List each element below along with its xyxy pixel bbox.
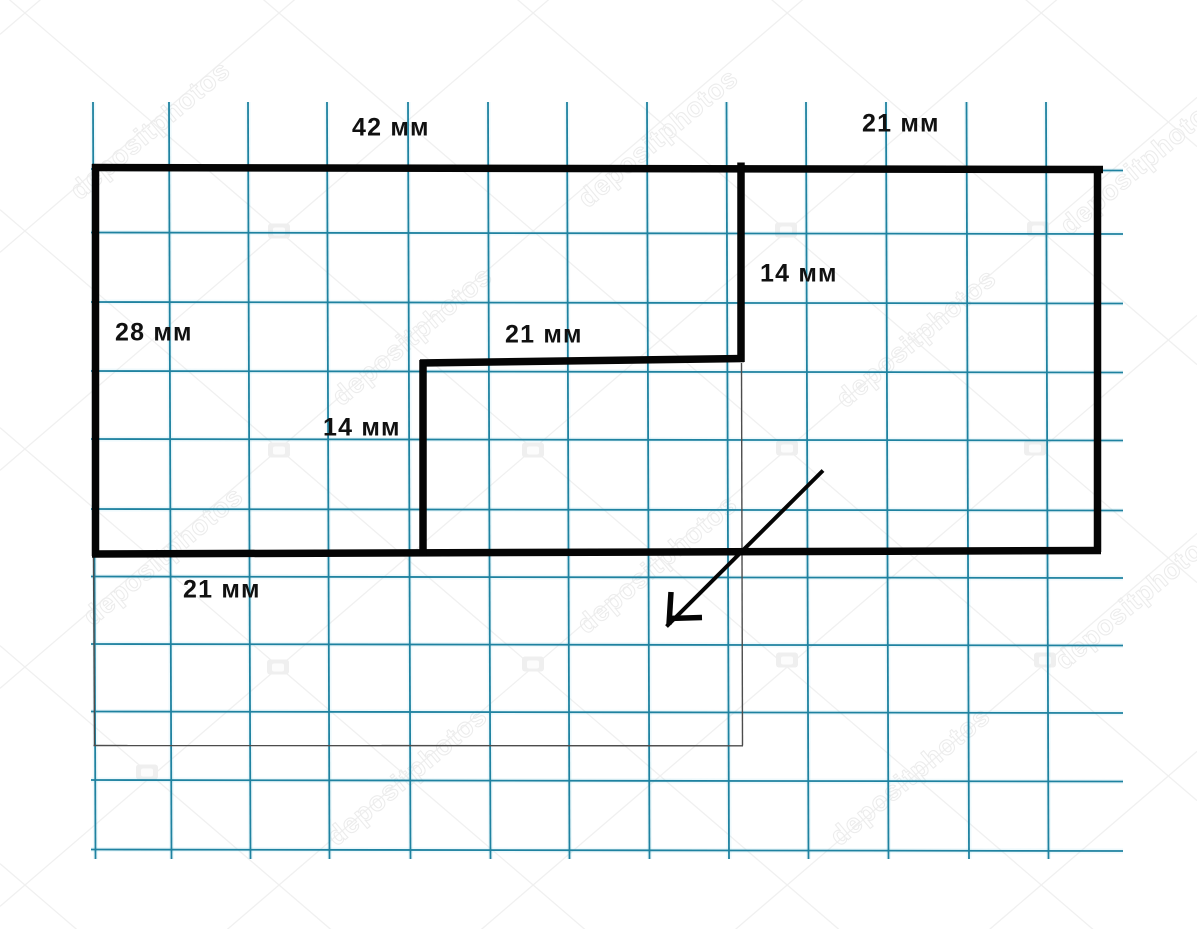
svg-text:21 мм: 21 мм [183,576,261,604]
svg-text:28 мм: 28 мм [115,319,193,347]
svg-text:14 мм: 14 мм [760,260,838,288]
svg-text:21 мм: 21 мм [505,321,583,349]
svg-text:42 мм: 42 мм [352,114,430,142]
svg-text:21 мм: 21 мм [862,110,940,138]
svg-text:14 мм: 14 мм [323,414,401,442]
